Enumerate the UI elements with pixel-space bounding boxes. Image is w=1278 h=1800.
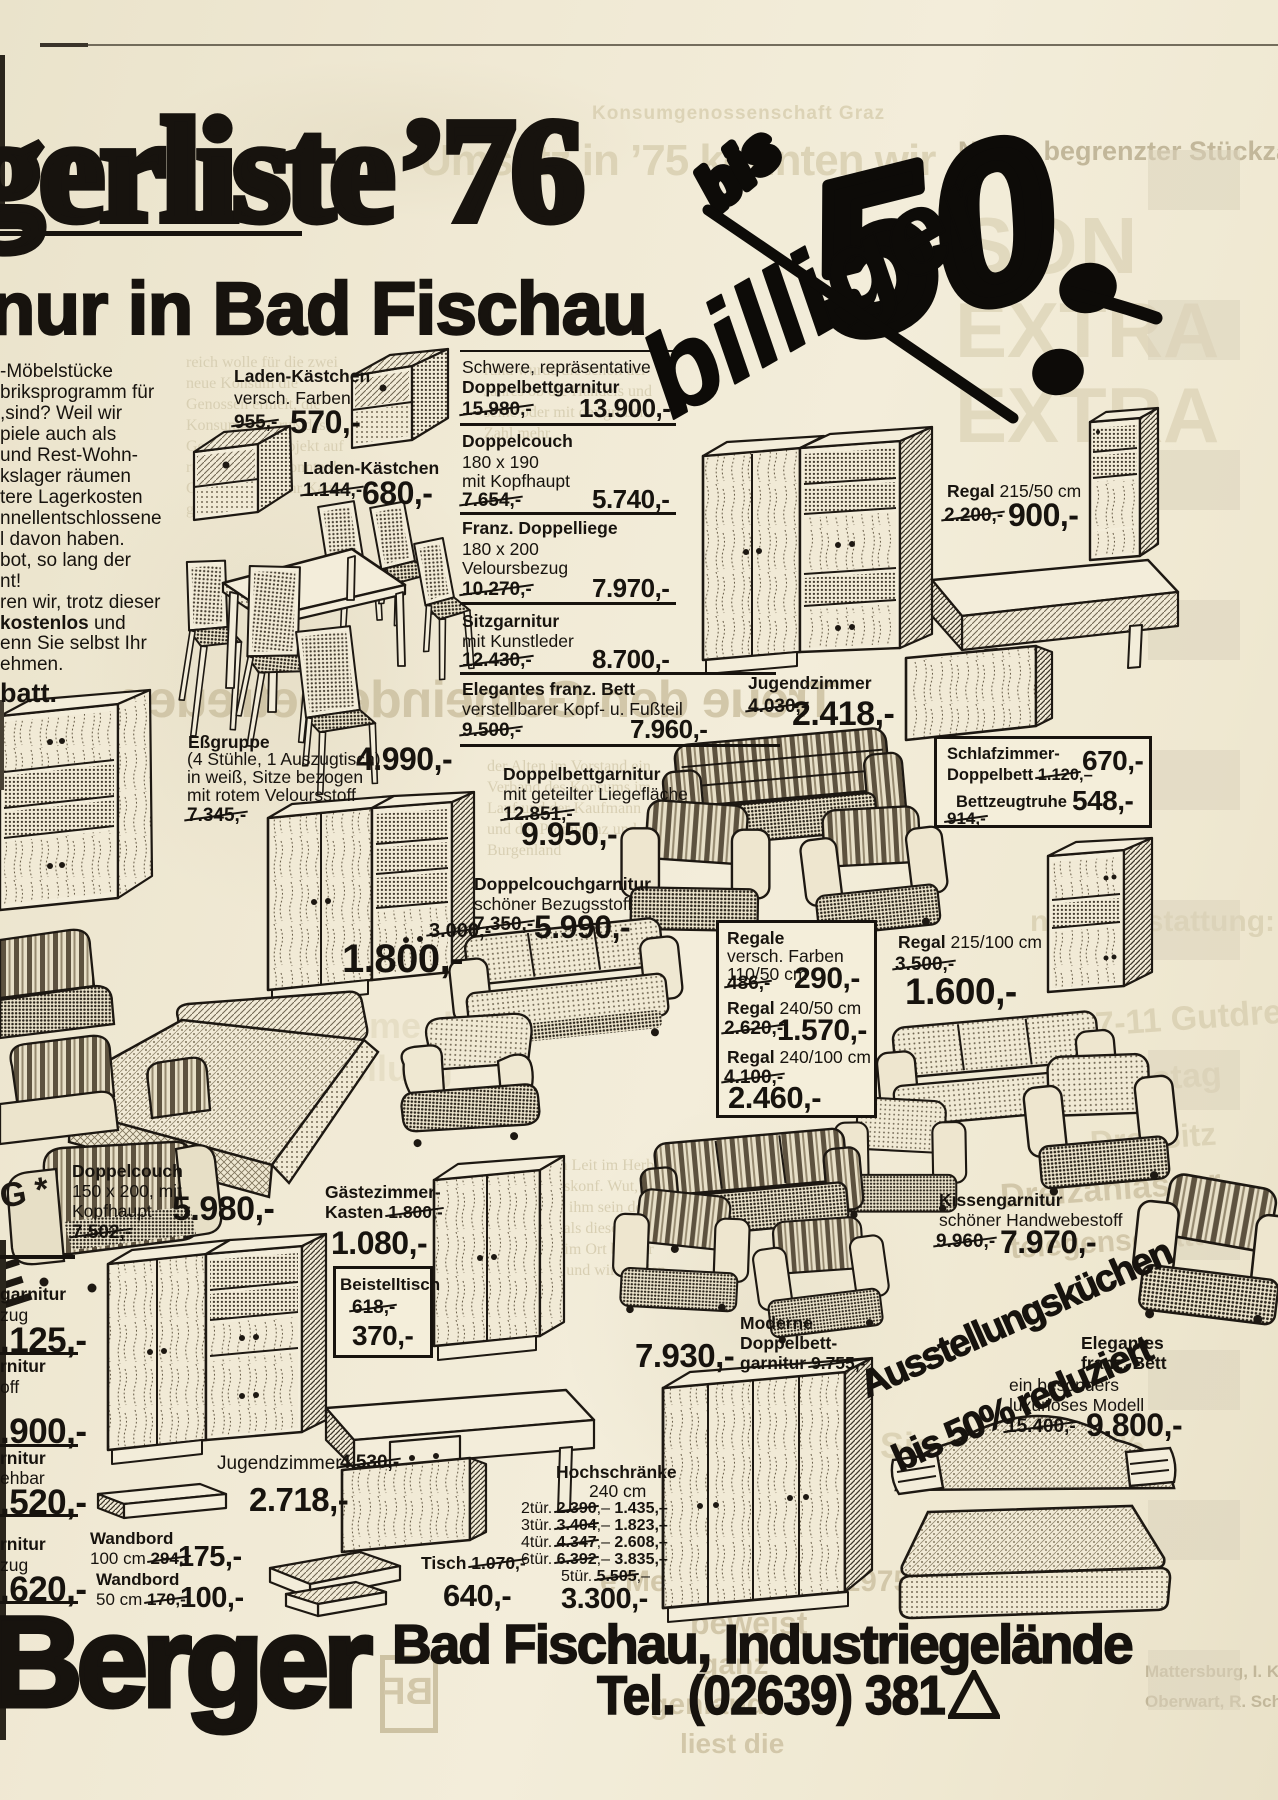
svg-text:bis: bis bbox=[683, 115, 792, 222]
